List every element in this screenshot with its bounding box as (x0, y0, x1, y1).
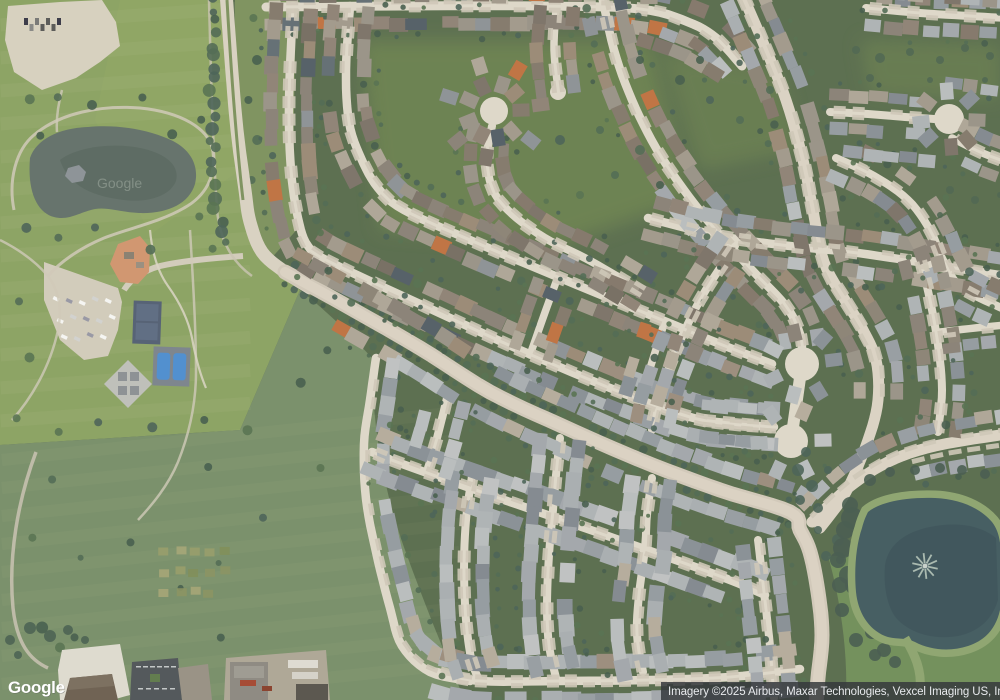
svg-text:Google: Google (8, 678, 65, 697)
svg-text:Imagery ©2025 Airbus, Maxar Te: Imagery ©2025 Airbus, Maxar Technologies… (668, 686, 1000, 698)
